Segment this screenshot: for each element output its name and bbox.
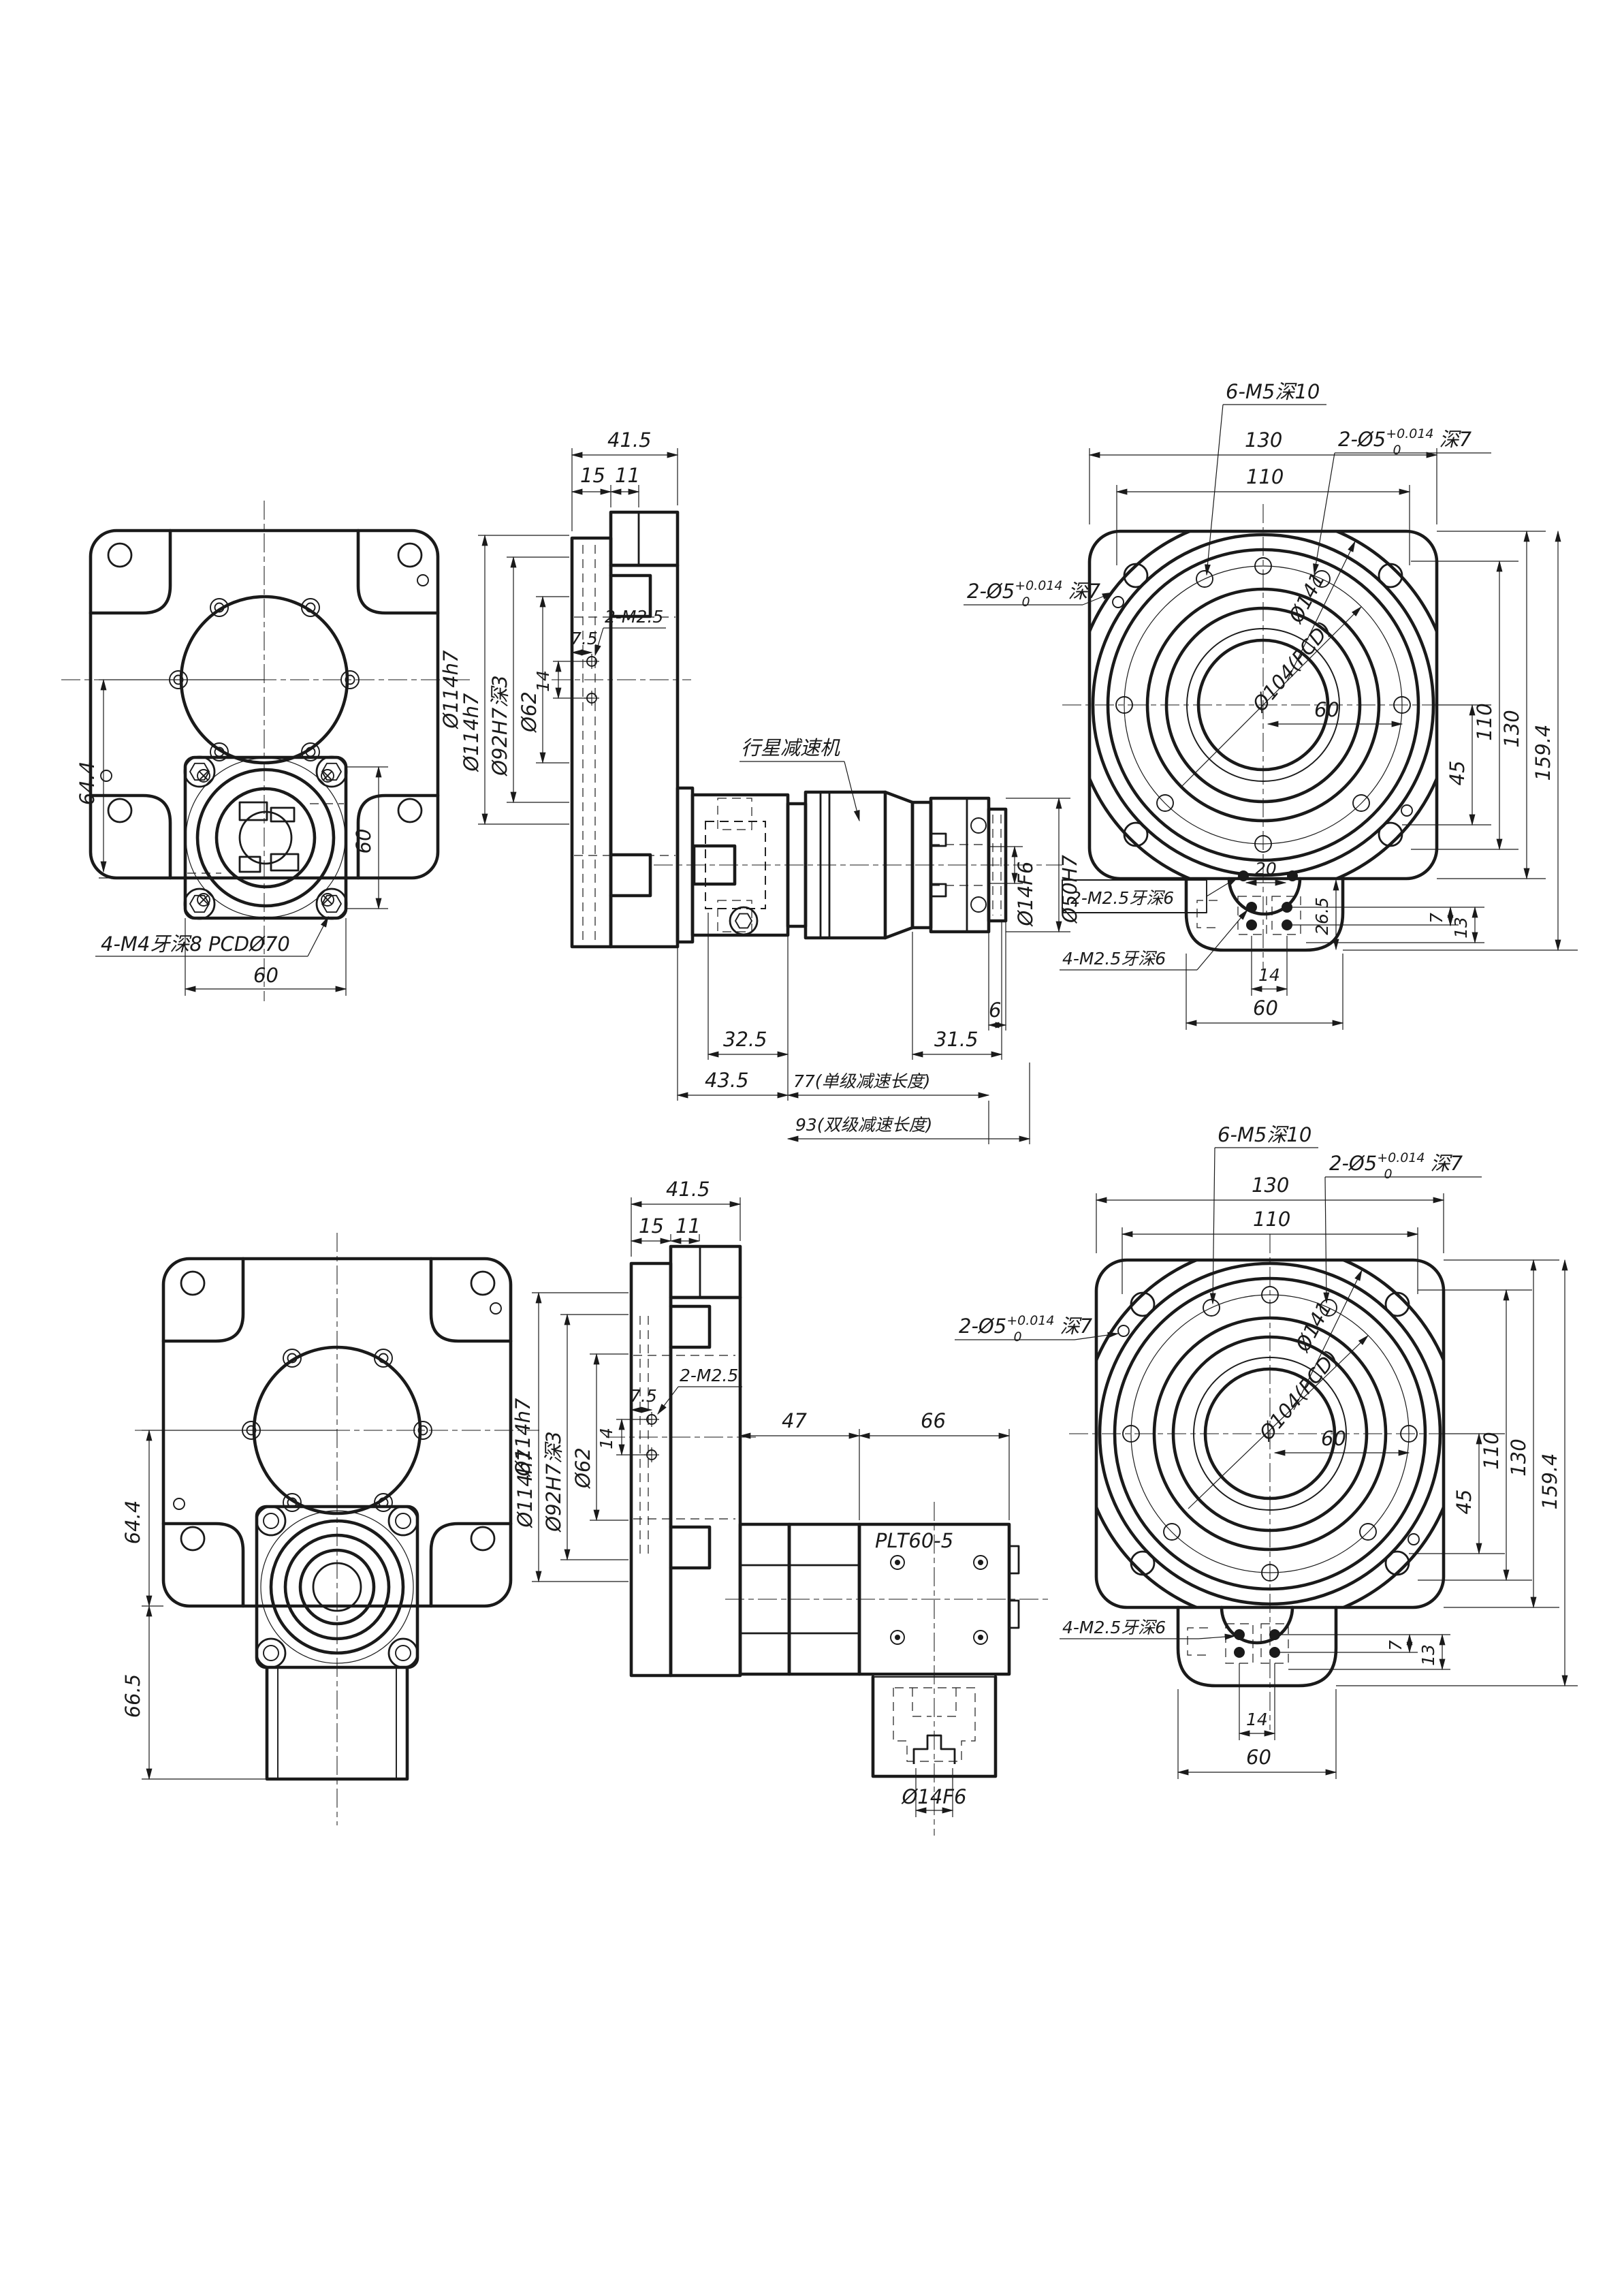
dim-130-top: 130 (1245, 428, 1282, 452)
dim-41-5: 41.5 (607, 428, 652, 452)
label-2m25-b: 2-M2.5 (680, 1366, 738, 1385)
dim-66-5: 66.5 (121, 1674, 144, 1718)
dim-60-center-b: 60 (1321, 1427, 1346, 1450)
label-6m5: 6-M5深10 (1226, 380, 1320, 403)
dim-159-4: 159.4 (1531, 724, 1555, 781)
dim-159-4-b: 159.4 (1538, 1453, 1561, 1509)
dim-31-5: 31.5 (934, 1028, 979, 1051)
dim-13-b: 13 (1418, 1644, 1438, 1666)
view-rear-top: 130 110 6-M5深10 2-Ø5+0.0140深7 2-Ø5+0.014… (964, 380, 1578, 1030)
dim-dia14-b: Ø14F6 (902, 1785, 967, 1808)
dim-dia62: Ø62 (518, 691, 541, 733)
dim-43-5: 43.5 (705, 1069, 749, 1092)
label-2m25-deep: 2-M2.5牙深6 (1070, 888, 1174, 908)
dim-7-5-b: 7.5 (630, 1386, 657, 1406)
dim-13: 13 (1451, 917, 1471, 939)
dim-11: 11 (615, 464, 640, 487)
dim-47: 47 (782, 1409, 807, 1432)
dim-dia114-sb: Ø114h7 (513, 1449, 537, 1528)
dim-14-tab-b: 14 (1246, 1710, 1268, 1729)
dim-60-bottom: 60 (253, 964, 279, 987)
dim-dia92-b: Ø92H7深3 (542, 1431, 565, 1532)
label-planetary: 行星减速机 (741, 736, 840, 759)
dim-66: 66 (921, 1409, 946, 1432)
dim-60-tab: 60 (1253, 996, 1278, 1020)
dim-45-b: 45 (1452, 1490, 1476, 1515)
dim-45: 45 (1446, 761, 1469, 786)
dim-110-right: 110 (1473, 703, 1496, 740)
label-4m25-deep: 4-M2.5牙深6 (1062, 949, 1166, 969)
label-2m25: 2-M2.5 (605, 607, 663, 627)
dim-64-4: 64.4 (76, 761, 99, 806)
dim-15: 15 (580, 464, 605, 487)
dim-15-b: 15 (639, 1214, 664, 1238)
view-side-top: 41.5 15 11 Ø114h7 Ø92H7深3 Ø62 7.5 14 2-M… (460, 428, 1081, 1144)
dim-60-center: 60 (1314, 698, 1339, 721)
dim-26-5: 26.5 (1312, 897, 1332, 935)
dim-110-top: 110 (1246, 465, 1284, 488)
dim-14-sb: 14 (597, 1428, 616, 1449)
dim-dia114: Ø114h7 (439, 650, 462, 729)
dim-7-b: 7 (1386, 1640, 1405, 1651)
dim-dia141-b: Ø141 (1290, 1298, 1336, 1356)
view-side-bottom: 41.5 15 11 Ø114h7 Ø92H7深3 Ø62 7.5 14 2-M… (513, 1178, 1052, 1836)
dim-60-tab-b: 60 (1246, 1746, 1271, 1769)
drawing-sheet: 64.4 Ø114h7 60 60 4-M4牙深8 PCDØ70 41.5 15… (0, 0, 1622, 2296)
label-6m5-b: 6-M5深10 (1218, 1123, 1311, 1146)
dim-93: 93(双级减速长度) (795, 1115, 932, 1135)
dim-dia62-b: Ø62 (571, 1447, 594, 1489)
dim-41-5-b: 41.5 (666, 1178, 710, 1201)
dim-7: 7 (1427, 913, 1446, 924)
dim-64-4-b: 64.4 (121, 1500, 144, 1545)
gearbox-face-holes (891, 1556, 987, 1644)
dim-130-right-b: 130 (1507, 1438, 1530, 1476)
label-4m4: 4-M4牙深8 PCDØ70 (101, 932, 290, 956)
dim-11-b: 11 (675, 1214, 701, 1238)
view-rear-bottom: 130 110 6-M5深10 2-Ø5+0.0140深7 2-Ø5+0.014… (955, 1123, 1578, 1779)
dim-dia141: Ø141 (1284, 569, 1329, 627)
dim-14-side: 14 (533, 670, 553, 692)
dim-32-5: 32.5 (723, 1028, 767, 1051)
dim-130-right: 130 (1500, 710, 1523, 747)
dim-7-5: 7.5 (571, 629, 598, 648)
dim-6: 6 (989, 998, 1001, 1022)
dim-110-top-b: 110 (1253, 1208, 1290, 1231)
dim-20: 20 (1255, 859, 1277, 879)
dim-130-top-b: 130 (1252, 1174, 1289, 1197)
label-plt60: PLT60-5 (875, 1529, 953, 1552)
label-4m25-deep-b: 4-M2.5牙深6 (1062, 1618, 1166, 1637)
dim-110-right-b: 110 (1480, 1432, 1503, 1469)
dim-dia114-side: Ø114h7 (460, 693, 483, 772)
dim-60-flange: 60 (352, 829, 375, 854)
dim-dia14: Ø14F6 (1014, 862, 1037, 927)
dim-dia92: Ø92H7深3 (488, 675, 511, 776)
cad-drawing: 64.4 Ø114h7 60 60 4-M4牙深8 PCDØ70 41.5 15… (0, 0, 1622, 2296)
dim-77: 77(单级减速长度) (793, 1071, 930, 1091)
view-front-top: 64.4 Ø114h7 60 60 4-M4牙深8 PCDØ70 (61, 501, 470, 1001)
dim-14-tab: 14 (1258, 965, 1280, 985)
view-front-bottom: 64.4 66.5 Ø114h7 (121, 1233, 539, 1825)
